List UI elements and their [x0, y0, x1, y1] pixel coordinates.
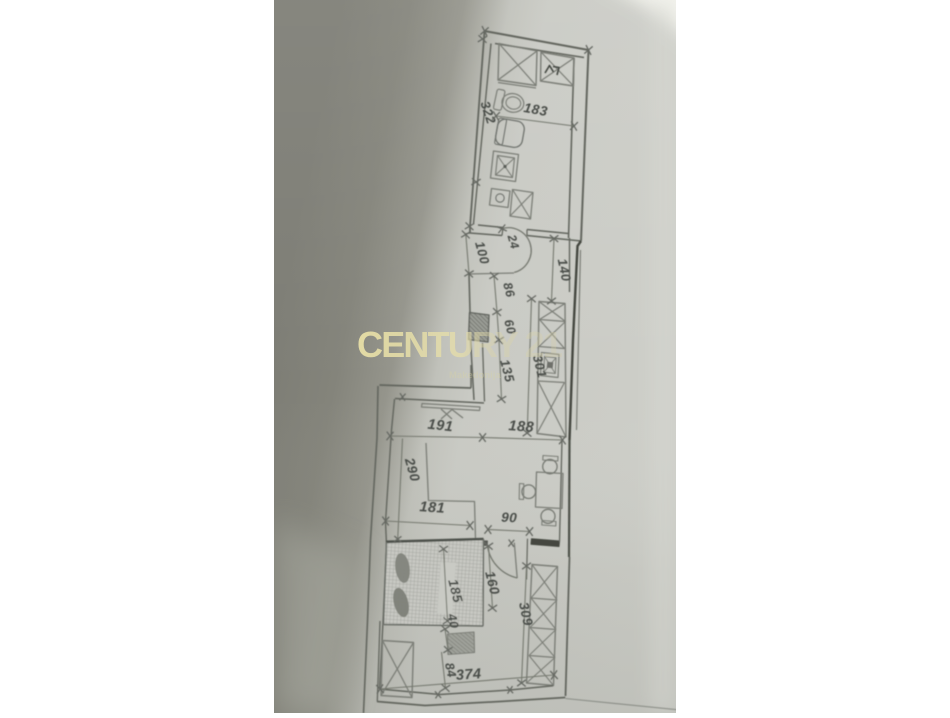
svg-text:CENTURY 21: CENTURY 21 — [357, 324, 563, 365]
svg-text:90: 90 — [501, 510, 518, 526]
svg-text:Makedonija: Makedonija — [449, 370, 501, 381]
svg-text:374: 374 — [455, 666, 482, 684]
svg-text:191: 191 — [427, 417, 454, 436]
svg-text:181: 181 — [419, 499, 446, 517]
svg-text:188: 188 — [508, 418, 535, 436]
